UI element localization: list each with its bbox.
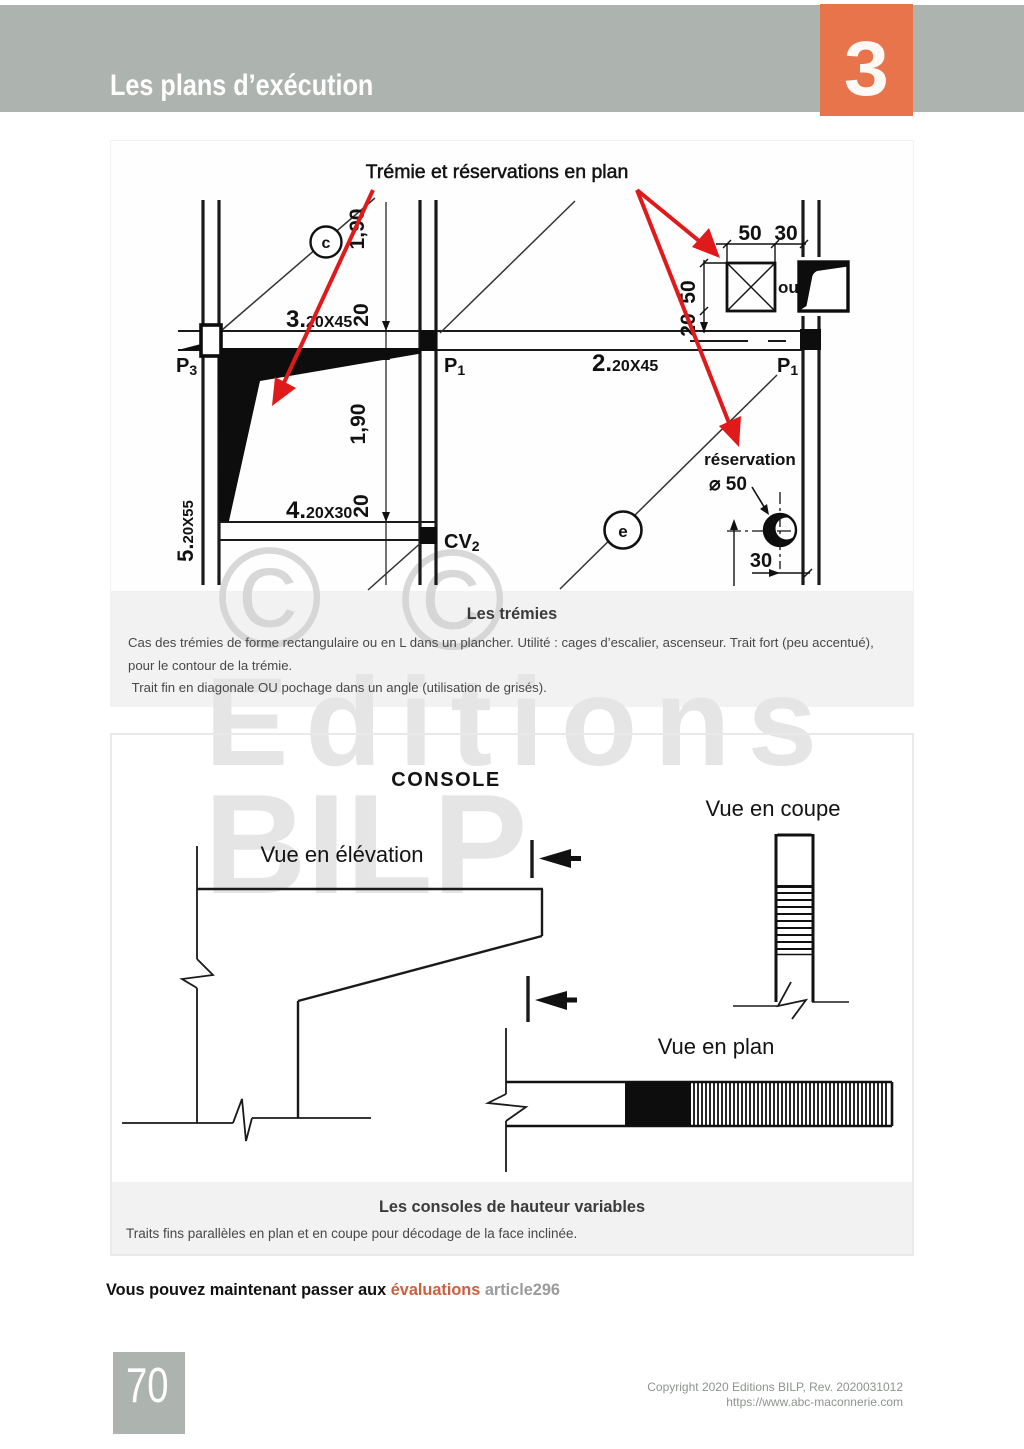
svg-text:⌀ 50: ⌀ 50 <box>709 474 747 495</box>
svg-text:P1: P1 <box>777 355 798 378</box>
svg-text:Vue en élévation: Vue en élévation <box>260 842 423 867</box>
svg-text:réservation: réservation <box>704 450 796 469</box>
svg-text:4.20X30: 4.20X30 <box>286 497 352 524</box>
svg-text:c: c <box>322 235 331 252</box>
svg-text:CV2: CV2 <box>444 531 480 554</box>
svg-text:P3: P3 <box>176 355 197 378</box>
svg-text:50: 50 <box>738 222 761 245</box>
svg-text:Vue en coupe: Vue en coupe <box>706 796 841 821</box>
svg-text:1,90: 1,90 <box>347 404 370 445</box>
svg-text:2.20X45: 2.20X45 <box>592 350 658 377</box>
svg-text:CONSOLE: CONSOLE <box>391 769 500 791</box>
svg-text:20: 20 <box>350 494 373 517</box>
svg-text:ou: ou <box>778 278 799 297</box>
svg-text:Trémie et réservations en plan: Trémie et réservations en plan <box>366 161 629 183</box>
svg-text:20: 20 <box>350 303 373 326</box>
svg-text:Vue en plan: Vue en plan <box>658 1034 775 1059</box>
svg-text:P1: P1 <box>444 355 465 378</box>
svg-text:e: e <box>618 522 627 541</box>
svg-text:5.20X55: 5.20X55 <box>173 500 198 562</box>
svg-text:30: 30 <box>750 550 772 572</box>
svg-text:30: 30 <box>774 222 797 245</box>
